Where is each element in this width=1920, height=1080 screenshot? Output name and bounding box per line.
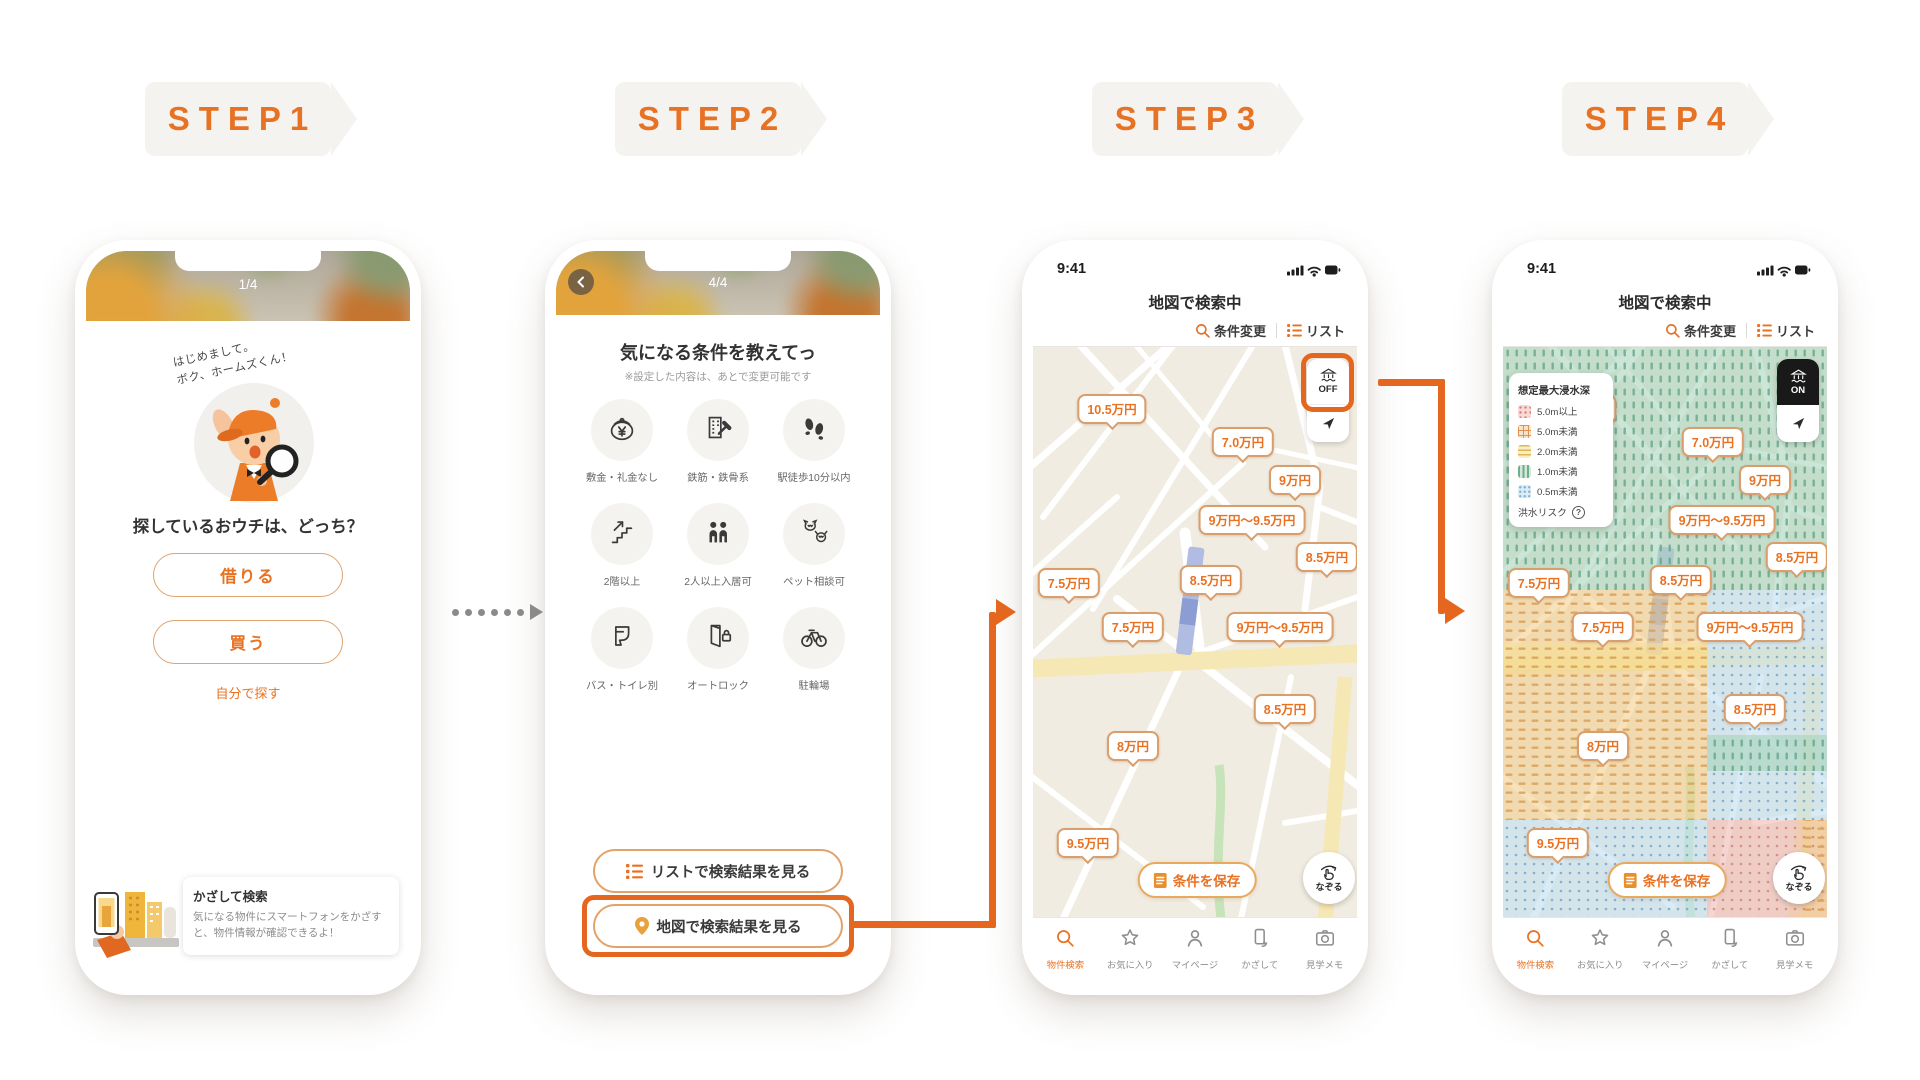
document-icon — [1154, 873, 1167, 888]
chevron-left-icon — [575, 276, 587, 288]
map-subbar: 条件変更 リスト — [1503, 315, 1827, 347]
status-time: 9:41 — [1057, 261, 1086, 277]
list-view-button[interactable]: リスト — [1757, 321, 1815, 340]
price-pin[interactable]: 7.0万円 — [1212, 427, 1274, 457]
step3-to-step4-arrowhead — [1445, 598, 1465, 624]
camera-icon — [1784, 927, 1806, 954]
step1-badge: STEP1 — [145, 82, 331, 156]
trace-area-button[interactable]: なぞる — [1303, 852, 1355, 904]
list-view-button[interactable]: リスト — [1287, 321, 1345, 340]
condition-label: 2人以上入居可 — [684, 573, 752, 588]
step3-to-step4-arrow — [1378, 379, 1445, 386]
price-pin[interactable]: 9万円〜9.5万円 — [1227, 612, 1334, 642]
phone-notch — [1592, 251, 1738, 271]
save-conditions-button[interactable]: 条件を保存 — [1608, 862, 1727, 898]
price-pin[interactable]: 9万円 — [1269, 465, 1321, 495]
help-icon[interactable]: ? — [1572, 506, 1585, 519]
kazashite-desc: 気になる物件にスマートフォンをかざすと、物件情報が確認できるよ！ — [193, 909, 389, 942]
hazard-overlay-toggle[interactable]: ON — [1777, 359, 1819, 405]
status-icons — [1757, 263, 1811, 282]
conditions-grid: 敷金・礼金なし 鉄筋・鉄骨系 駅徒歩10分以内 2階以上 2人以上入居可 ペット… — [566, 399, 870, 711]
price-pin[interactable]: 9万円〜9.5万円 — [1697, 612, 1804, 642]
kazashite-card: かざして検索 気になる物件にスマートフォンをかざすと、物件情報が確認できるよ！ — [183, 877, 399, 955]
condition-item[interactable]: 2人以上入居可 — [670, 503, 766, 607]
legend-item: 2.0m未満 — [1518, 444, 1604, 458]
tab-label: かざして — [1241, 957, 1278, 971]
condition-item[interactable]: 敷金・礼金なし — [574, 399, 670, 503]
hand-draw-icon — [1319, 863, 1339, 881]
tab-star[interactable]: お気に入り — [1568, 918, 1633, 984]
legend-label: 5.0m以上 — [1537, 404, 1578, 418]
person-icon — [1184, 927, 1206, 954]
hazard-map-icon — [1790, 369, 1807, 384]
price-pin[interactable]: 9.5万円 — [1527, 828, 1589, 858]
step2-badge: STEP2 — [615, 82, 801, 156]
tab-search[interactable]: 物件検索 — [1503, 918, 1568, 984]
step3-label: STEP3 — [1106, 100, 1265, 138]
tab-label: かざして — [1711, 957, 1748, 971]
price-pin[interactable]: 7.5万円 — [1508, 568, 1570, 598]
hazard-map-view[interactable]: 10.5万円7.0万円9万円9万円〜9.5万円8.5万円7.5万円8.5万円7.… — [1503, 347, 1827, 917]
map-button-highlight — [582, 895, 854, 957]
toilet-icon — [605, 619, 639, 658]
price-pin[interactable]: 9万円〜9.5万円 — [1669, 505, 1776, 535]
condition-label: 鉄筋・鉄骨系 — [687, 469, 749, 484]
hand-draw-icon — [1789, 863, 1809, 881]
phone-icon — [1719, 927, 1741, 954]
wifi-icon — [1309, 268, 1320, 273]
people-icon — [701, 515, 735, 554]
list-icon — [1757, 324, 1772, 337]
cellular-icon — [1287, 266, 1304, 276]
condition-label: 駅徒歩10分以内 — [777, 469, 850, 484]
stairs-icon — [605, 515, 639, 554]
price-pin[interactable]: 9万円 — [1739, 465, 1791, 495]
status-icons — [1287, 263, 1341, 282]
price-pin[interactable]: 8.5万円 — [1296, 542, 1357, 572]
price-pin[interactable]: 7.0万円 — [1682, 427, 1744, 457]
map-screen-title: 地図で検索中 — [1503, 291, 1827, 313]
conditions-note: ※設定した内容は、あとで変更可能です — [556, 369, 880, 384]
navigation-arrow-icon — [1321, 416, 1336, 431]
price-pin[interactable]: 9.5万円 — [1057, 828, 1119, 858]
tab-person[interactable]: マイページ — [1633, 918, 1698, 984]
mascot-homeskun — [190, 379, 318, 507]
step2-to-step3-arrow — [850, 921, 996, 928]
tab-phone[interactable]: かざして — [1697, 918, 1762, 984]
search-icon — [1665, 323, 1680, 338]
legend-label: 5.0m未満 — [1537, 424, 1578, 438]
price-pin[interactable]: 8.5万円 — [1254, 694, 1316, 724]
document-icon — [1624, 873, 1637, 888]
kazashite-title: かざして検索 — [193, 886, 389, 905]
legend-swatch-yellow — [1518, 445, 1531, 458]
list-icon — [626, 864, 643, 879]
condition-label: 駐輪場 — [799, 677, 830, 692]
condition-item[interactable]: 駐輪場 — [766, 607, 862, 711]
kazashite-banner[interactable]: かざして検索 気になる物件にスマートフォンをかざすと、物件情報が確認できるよ！ — [86, 870, 410, 965]
price-pin[interactable]: 8.5万円 — [1180, 565, 1242, 595]
search-icon — [1054, 927, 1076, 954]
condition-item[interactable]: ペット相談可 — [766, 503, 862, 607]
bottom-tab-bar: 物件検索 お気に入り マイページ かざして 見学メモ — [1503, 917, 1827, 984]
condition-item[interactable]: バス・トイレ別 — [574, 607, 670, 711]
tab-label: 物件検索 — [1517, 957, 1554, 971]
step3-badge: STEP3 — [1092, 82, 1278, 156]
bottom-tab-bar: 物件検索 お気に入り マイページ かざして 見学メモ — [1033, 917, 1357, 984]
legend-label: 1.0m未満 — [1537, 464, 1578, 478]
price-pin[interactable]: 8.5万円 — [1724, 694, 1786, 724]
star-icon — [1589, 927, 1611, 954]
kazashite-illustration-icon — [91, 880, 183, 958]
map-view[interactable]: 10.5万円7.0万円9万円9万円〜9.5万円8.5万円7.5万円8.5万円7.… — [1033, 347, 1357, 917]
tab-label: 見学メモ — [1306, 957, 1343, 971]
flood-depth-legend: 想定最大浸水深 5.0m以上 5.0m未満 2.0m未満 1.0m未満 0.5m… — [1509, 373, 1613, 527]
step1-to-step2-arrow — [452, 604, 543, 620]
status-time: 9:41 — [1527, 261, 1556, 277]
page-indicator: 4/4 — [556, 275, 880, 290]
legend-swatch-orange — [1518, 425, 1531, 438]
legend-item: 5.0m未満 — [1518, 424, 1604, 438]
search-question: 探しているおウチは、どっち？ — [86, 513, 410, 537]
price-pin[interactable]: 9万円〜9.5万円 — [1199, 505, 1306, 535]
rent-button[interactable]: 借りる — [153, 553, 343, 597]
purse-icon — [605, 411, 639, 450]
step4-label: STEP4 — [1576, 100, 1735, 138]
locate-me-button[interactable] — [1777, 405, 1819, 442]
legend-item: 1.0m未満 — [1518, 464, 1604, 478]
phone-step2: 4/4 気になる条件を教えてっ ※設定した内容は、あとで変更可能です 敷金・礼金… — [545, 240, 891, 995]
tab-label: マイページ — [1642, 957, 1688, 971]
condition-label: バス・トイレ別 — [586, 677, 658, 692]
phone-notch — [1122, 251, 1268, 271]
price-pin[interactable]: 10.5万円 — [1077, 394, 1146, 424]
legend-swatch-blue — [1518, 485, 1531, 498]
price-pin[interactable]: 7.5万円 — [1038, 568, 1100, 598]
price-pin[interactable]: 8万円 — [1107, 731, 1159, 761]
condition-label: ペット相談可 — [783, 573, 845, 588]
change-conditions-button[interactable]: 条件変更 — [1195, 321, 1266, 340]
tab-star[interactable]: お気に入り — [1098, 918, 1163, 984]
list-results-button[interactable]: リストで検索結果を見る — [593, 849, 843, 893]
step2-to-step3-arrow-vertical — [989, 612, 996, 928]
tab-person[interactable]: マイページ — [1163, 918, 1228, 984]
legend-label: 2.0m未満 — [1537, 444, 1578, 458]
tab-phone[interactable]: かざして — [1227, 918, 1292, 984]
conditions-title: 気になる条件を教えてっ — [556, 339, 880, 365]
tab-label: 物件検索 — [1047, 957, 1084, 971]
search-icon — [1524, 927, 1546, 954]
condition-item[interactable]: オートロック — [670, 607, 766, 711]
navigation-arrow-icon — [1791, 416, 1806, 431]
phone-icon — [1249, 927, 1271, 954]
star-icon — [1119, 927, 1141, 954]
condition-item[interactable]: 駅徒歩10分以内 — [766, 399, 862, 503]
legend-footer: 洪水リスク — [1518, 505, 1567, 519]
legend-item: 5.0m以上 — [1518, 404, 1604, 418]
map-subbar: 条件変更 リスト — [1033, 315, 1357, 347]
page-indicator: 1/4 — [86, 277, 410, 292]
buy-button[interactable]: 買う — [153, 620, 343, 664]
step4-badge: STEP4 — [1562, 82, 1748, 156]
footsteps-icon — [797, 411, 831, 450]
step2-to-step3-arrowhead — [996, 599, 1016, 625]
price-pin[interactable]: 7.5万円 — [1572, 612, 1634, 642]
phone-step1: 1/4 はじめまして。ボク、ホームズくん！ — [75, 240, 421, 995]
legend-swatch-pink — [1518, 405, 1531, 418]
legend-swatch-green — [1518, 465, 1531, 478]
tab-label: マイページ — [1172, 957, 1218, 971]
condition-label: 2階以上 — [604, 573, 641, 588]
condition-item[interactable]: 2階以上 — [574, 503, 670, 607]
price-pin[interactable]: 8.5万円 — [1650, 565, 1712, 595]
legend-title: 想定最大浸水深 — [1518, 382, 1604, 397]
tab-camera[interactable]: 見学メモ — [1762, 918, 1827, 984]
step1-label: STEP1 — [159, 100, 318, 138]
map-controls: ON — [1777, 359, 1819, 442]
tab-label: 見学メモ — [1776, 957, 1813, 971]
condition-label: 敷金・礼金なし — [586, 469, 658, 484]
step2-label: STEP2 — [629, 100, 788, 138]
phone-step4: 9:41 地図で検索中 条件変更 — [1492, 240, 1838, 995]
map-screen-title: 地図で検索中 — [1033, 291, 1357, 313]
camera-icon — [1314, 927, 1336, 954]
self-search-link[interactable]: 自分で探す — [86, 683, 410, 702]
tab-label: お気に入り — [1107, 957, 1154, 971]
step3-to-step4-arrow-vertical — [1438, 379, 1445, 614]
back-button[interactable] — [568, 269, 594, 295]
phone-step3: 9:41 地図で検索中 条件変更 — [1022, 240, 1368, 995]
price-pin[interactable]: 7.5万円 — [1102, 612, 1164, 642]
legend-label: 0.5m未満 — [1537, 484, 1578, 498]
tab-label: お気に入り — [1577, 957, 1624, 971]
tutorial-canvas: STEP1 STEP2 STEP3 STEP4 1/4 はじめまして。ボク、ホー… — [0, 0, 1920, 1080]
condition-label: オートロック — [687, 677, 749, 692]
battery-icon — [1325, 266, 1340, 275]
person-icon — [1654, 927, 1676, 954]
condition-item[interactable]: 鉄筋・鉄骨系 — [670, 399, 766, 503]
legend-item: 0.5m未満 — [1518, 484, 1604, 498]
bicycle-icon — [797, 619, 831, 658]
price-pin[interactable]: 8万円 — [1577, 731, 1629, 761]
change-conditions-button[interactable]: 条件変更 — [1665, 321, 1736, 340]
phone-notch — [175, 251, 321, 271]
pets-icon — [797, 515, 831, 554]
search-icon — [1195, 323, 1210, 338]
building-icon — [701, 411, 735, 450]
tab-camera[interactable]: 見学メモ — [1292, 918, 1357, 984]
trace-area-button[interactable]: なぞる — [1773, 852, 1825, 904]
autolock-icon — [701, 619, 735, 658]
list-icon — [1287, 324, 1302, 337]
hazard-toggle-highlight — [1301, 353, 1354, 412]
save-conditions-button[interactable]: 条件を保存 — [1138, 862, 1257, 898]
phone-notch — [645, 251, 791, 271]
tab-search[interactable]: 物件検索 — [1033, 918, 1098, 984]
price-pin[interactable]: 8.5万円 — [1766, 542, 1827, 572]
